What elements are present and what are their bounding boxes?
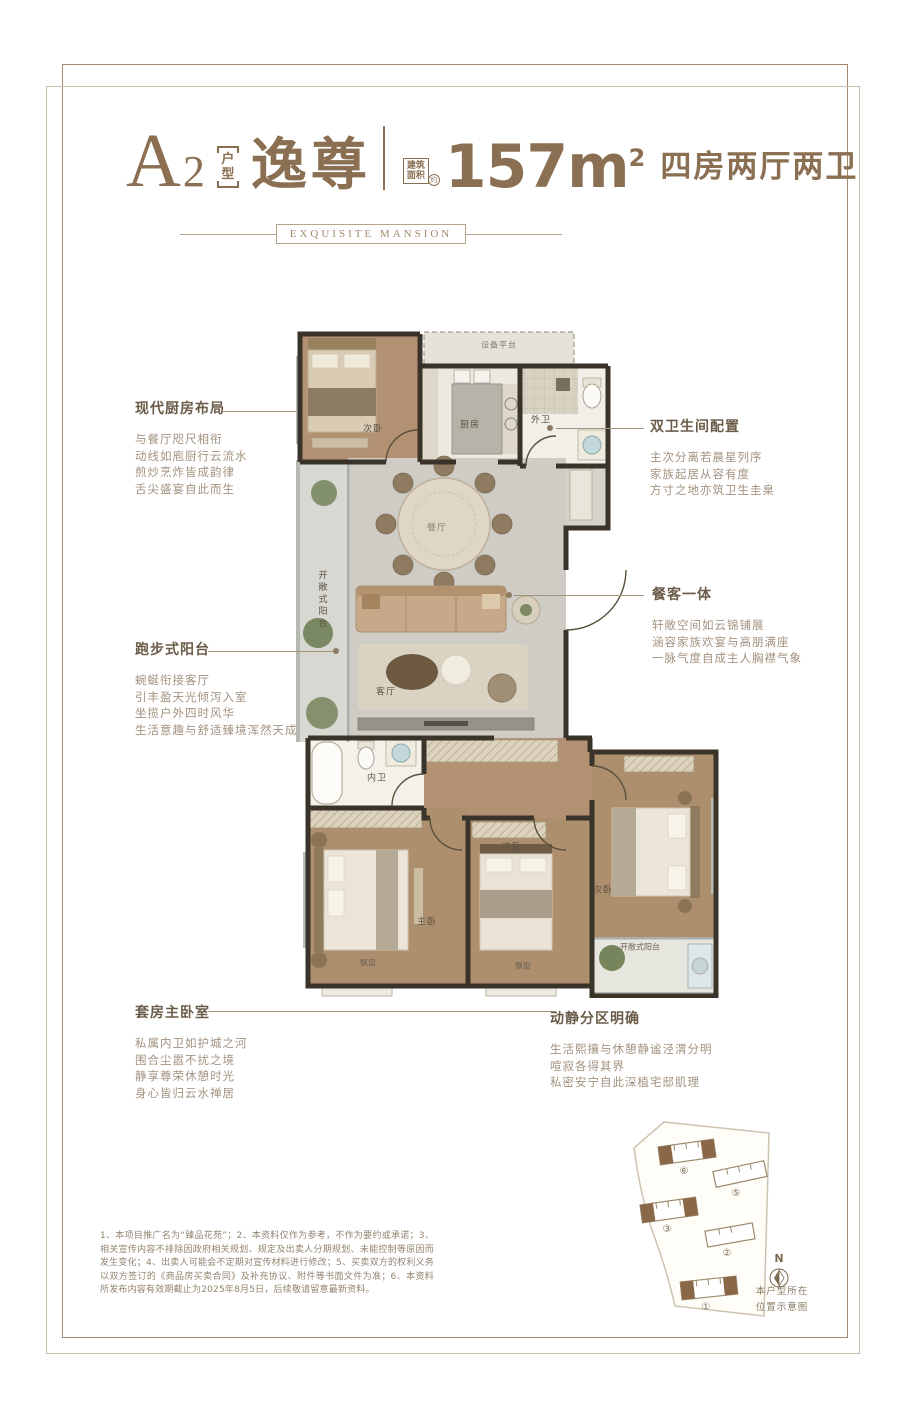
siteplan-caption-line2: 位置示意图	[756, 1301, 809, 1313]
compass-n-label: N	[774, 1252, 783, 1265]
callout-kitchen-line: 煎炒烹炸皆成韵律	[135, 464, 248, 481]
callout-zoning-line: 私密安宁自此深植宅邸肌理	[550, 1074, 713, 1091]
area-exponent: 2	[629, 144, 645, 172]
label-bedroom-right: 次卧	[593, 883, 613, 896]
kitchen-sink	[454, 370, 470, 383]
callout-balcony-line: 生活意趣与舒适臻境浑然天成	[135, 722, 298, 739]
unit-type-tag: 户 型	[215, 146, 241, 188]
area-badge-line2: 面积	[407, 171, 425, 181]
label-dining: 餐厅	[427, 521, 447, 534]
subtitle-text: EXQUISITE MANSION	[276, 224, 467, 244]
toilet	[583, 384, 601, 408]
callout-master-line: 围合尘嚣不扰之境	[135, 1052, 248, 1069]
callout-kitchen-line: 舌尖盛宴自此而生	[135, 481, 248, 498]
callout-bathrooms: 双卫生间配置 主次分离若晨星列序 家族起居从容有度 方寸之地亦筑卫生圭臬	[650, 416, 775, 499]
right-headboard	[690, 806, 700, 898]
unit-code-number: 2	[183, 152, 205, 192]
label-balcony-left: 开敞式阳台	[316, 570, 329, 630]
callout-bathrooms-line: 方寸之地亦筑卫生圭臬	[650, 482, 775, 499]
callout-dining-living: 餐客一体 轩敞空间如云锦铺展 涵容家族欢宴与高朋满座 一脉气度自成主人胸襟气象	[652, 584, 802, 667]
pouf	[441, 655, 471, 685]
wash-basin-inner	[392, 744, 410, 762]
bathtub	[312, 742, 342, 804]
area-badge: 建筑 面积 约	[403, 158, 429, 184]
siteplan: ⑥ ⑤ ③ ② ① N	[612, 1108, 852, 1348]
shoe-cabinet	[570, 470, 592, 520]
leader-dot-balcony	[333, 648, 339, 654]
unit-code-letter: A	[126, 130, 181, 192]
site-building-1-number: ①	[702, 1302, 711, 1313]
bench	[312, 438, 368, 448]
header-divider	[383, 126, 385, 190]
label-bay-window-1: 飘窗	[360, 958, 376, 969]
leader-dining	[514, 595, 644, 596]
wardrobe	[426, 740, 558, 762]
site-building-2-number: ②	[723, 1248, 732, 1259]
leader-dot-bathrooms	[547, 425, 553, 431]
subtitle-line-left	[180, 234, 276, 235]
wash-basin	[583, 436, 601, 454]
plant	[311, 480, 337, 506]
callout-zoning-title: 动静分区明确	[550, 1008, 713, 1028]
callout-bathrooms-line: 家族起居从容有度	[650, 466, 775, 483]
label-bay-window-2: 飘窗	[515, 961, 531, 972]
subtitle-row: EXQUISITE MANSION	[180, 224, 562, 244]
label-bath-outer: 外卫	[531, 413, 551, 426]
unit-name: 逸尊	[251, 139, 371, 192]
site-building-5-number: ⑤	[732, 1188, 741, 1199]
siteplan-caption-line1: 本户型所在	[756, 1285, 809, 1297]
callout-dining-line: 轩敞空间如云锦铺展	[652, 617, 802, 634]
master-headboard	[314, 848, 324, 952]
callout-balcony-line: 引丰盈天光倾泻入室	[135, 689, 298, 706]
callout-balcony-line: 蜿蜒衔接客厅	[135, 672, 298, 689]
brochure-page: A 2 户 型 逸尊 建筑 面积 约 157m2 四房两厅两卫 EXQUISIT…	[0, 0, 900, 1408]
callout-kitchen: 现代厨房布局 与餐厅咫尺相衔 动线如庖厨行云流水 煎炒烹炸皆成韵律 舌尖盛宴自此…	[135, 398, 248, 497]
callout-kitchen-title: 现代厨房布局	[135, 398, 248, 418]
bed-headboard	[308, 338, 376, 350]
callout-zoning-line: 生活熙攘与休憩静谧泾渭分明	[550, 1041, 713, 1058]
nightstand	[311, 832, 327, 848]
callout-balcony: 跑步式阳台 蜿蜒衔接客厅 引丰盈天光倾泻入室 坐揽户外四时风华 生活意趣与舒适臻…	[135, 639, 298, 738]
unit-tag-top: 户	[215, 152, 241, 167]
compass-icon: N	[770, 1252, 788, 1287]
area-value: 157m2	[445, 143, 644, 192]
area-approx-mark: 约	[428, 174, 440, 186]
callout-zoning: 动静分区明确 生活熙攘与休憩静谧泾渭分明 喧寂各得其界 私密安宁自此深植宅邸肌理	[550, 1008, 713, 1091]
callout-master-suite: 套房主卧室 私属内卫如护城之河 围合尘嚣不扰之境 静享尊荣休憩时光 身心皆归云水…	[135, 1002, 248, 1101]
master-closet	[310, 810, 422, 828]
label-bedroom-top: 次卧	[363, 422, 383, 435]
label-master-bedroom: 主卧	[417, 915, 437, 928]
label-balcony-bottom: 开敞式阳台	[620, 942, 660, 953]
callout-master-line: 私属内卫如护城之河	[135, 1035, 248, 1052]
callout-bathrooms-title: 双卫生间配置	[650, 416, 775, 436]
armchair	[488, 674, 516, 702]
label-equipment-platform: 设备平台	[481, 340, 517, 351]
kitchen-counter	[420, 366, 438, 462]
callout-dining-line: 涵容家族欢宴与高朋满座	[652, 634, 802, 651]
callout-bathrooms-line: 主次分离若晨星列序	[650, 449, 775, 466]
leader-master	[208, 1011, 556, 1012]
toilet-inner	[358, 747, 374, 769]
site-building-6-number: ⑥	[680, 1166, 689, 1177]
label-kitchen: 厨房	[460, 418, 480, 431]
label-bath-inner: 内卫	[367, 771, 387, 784]
callout-master-line: 静享尊荣休憩时光	[135, 1068, 248, 1085]
callout-balcony-line: 坐揽户外四时风华	[135, 705, 298, 722]
area-badge-line1: 建筑	[407, 161, 425, 171]
callout-kitchen-line: 与餐厅咫尺相衔	[135, 431, 248, 448]
callout-dining-line: 一脉气度自成主人胸襟气象	[652, 650, 802, 667]
callout-zoning-line: 喧寂各得其界	[550, 1058, 713, 1075]
label-living: 客厅	[376, 685, 396, 698]
subtitle-line-right	[466, 234, 562, 235]
callout-kitchen-line: 动线如庖厨行云流水	[135, 448, 248, 465]
callout-dining-title: 餐客一体	[652, 584, 802, 604]
callout-master-title: 套房主卧室	[135, 1002, 248, 1022]
right-closet	[624, 756, 694, 772]
rooms-description: 四房两厅两卫	[660, 141, 858, 186]
unit-tag-bottom: 型	[215, 167, 241, 182]
label-bedroom-mid: 次卧	[502, 840, 522, 853]
header: A 2 户 型 逸尊 建筑 面积 约 157m2 四房两厅两卫	[126, 126, 858, 192]
callout-master-line: 身心皆归云水禅居	[135, 1085, 248, 1102]
leader-bathrooms	[556, 428, 644, 429]
leader-dot-dining	[506, 592, 512, 598]
callout-balcony-title: 跑步式阳台	[135, 639, 298, 659]
site-building-3-number: ③	[663, 1224, 672, 1235]
disclaimer-text: 1、本项目推广名为“臻品花苑”；2、本资料仅作为参考，不作为要约或承诺；3、相关…	[100, 1230, 434, 1298]
